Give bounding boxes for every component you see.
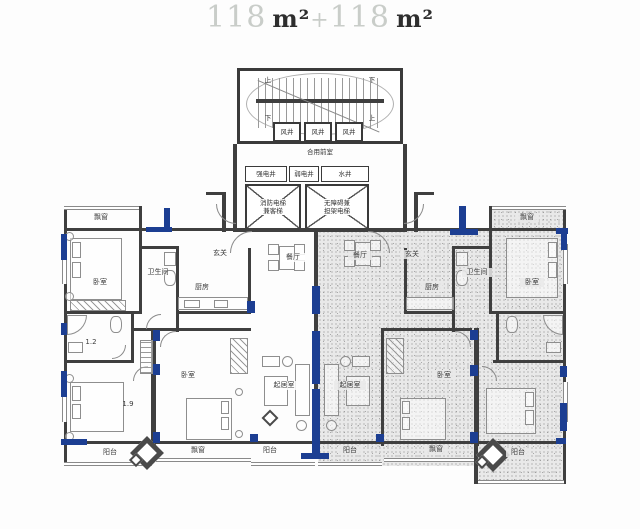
- side-table: [262, 356, 280, 367]
- wall: [493, 360, 563, 363]
- stretcher-elevator-label-2: 担架电梯: [322, 207, 352, 215]
- room-label-entry-right: 玄关: [400, 250, 424, 259]
- structure-column: [470, 365, 478, 376]
- sink: [456, 252, 468, 266]
- fire-elevator-label-2: 兼客梯: [261, 207, 285, 215]
- pillow: [221, 417, 229, 430]
- toilet: [110, 316, 122, 333]
- wall: [381, 328, 384, 446]
- structure-column: [312, 286, 320, 314]
- room-label-balcony-center: 阳台: [258, 446, 282, 455]
- wall: [176, 311, 251, 314]
- entry-door-arc: [230, 231, 252, 253]
- wardrobe: [230, 338, 248, 374]
- shower: [67, 315, 87, 335]
- window: [563, 244, 568, 284]
- room-label-entry-left: 玄关: [208, 249, 232, 258]
- room-label-bedroom-bm-right: 卧室: [432, 371, 456, 380]
- structure-column: [312, 389, 320, 439]
- floorplan: 118 m²+118 m² 上 下 下 上 风井 风井 风井 合用前室 强电井 …: [0, 0, 640, 529]
- structure-column: [450, 229, 478, 235]
- dim-label-bed: 1.9: [120, 400, 136, 409]
- structure-column: [61, 234, 67, 260]
- structure-column: [376, 434, 384, 442]
- shared-lobby-label: 合用前室: [290, 148, 350, 156]
- kitchen-counter: [406, 297, 454, 310]
- structure-column: [470, 330, 478, 340]
- wall: [139, 228, 142, 314]
- room-label-balcony-right-center: 阳台: [338, 446, 362, 455]
- wall: [139, 246, 179, 249]
- wind-shaft-box: 风井: [304, 122, 332, 142]
- dim-label-bath: 1.2: [83, 338, 99, 347]
- door-arc: [216, 204, 236, 224]
- wall: [156, 441, 251, 444]
- room-label-bay-window-bm-right: 飘窗: [424, 445, 448, 454]
- area-right: 118: [330, 0, 390, 35]
- fire-elevator: 消防电梯 兼客梯: [245, 184, 301, 230]
- pillow: [72, 404, 81, 419]
- stair-up-label: 上: [366, 114, 378, 122]
- wind-shaft-label: 风井: [310, 128, 327, 136]
- pillow: [72, 242, 81, 258]
- wall: [176, 246, 179, 332]
- pillow: [525, 392, 534, 407]
- stair-down-label: 下: [366, 76, 378, 84]
- balcony-rail: [251, 462, 315, 466]
- wardrobe: [386, 338, 404, 374]
- armchair: [340, 356, 351, 367]
- chair: [344, 240, 355, 251]
- wall: [64, 360, 134, 363]
- pillow: [548, 242, 557, 258]
- wall: [496, 311, 499, 363]
- wall: [206, 192, 224, 195]
- wall: [416, 192, 434, 195]
- shaft-weak-box: 弱电井: [289, 166, 319, 182]
- structure-column: [61, 439, 87, 445]
- wall: [452, 246, 492, 249]
- wall: [131, 311, 134, 363]
- door-arc: [112, 345, 126, 359]
- shaft-strong-box: 强电井: [245, 166, 287, 182]
- wall: [318, 441, 382, 444]
- structure-column: [459, 206, 466, 230]
- room-label-living-left: 起居室: [268, 381, 300, 390]
- structure-column: [312, 331, 320, 384]
- room-label-kitchen-right: 厨房: [420, 283, 444, 292]
- wall: [64, 444, 67, 464]
- fire-elevator-label-1: 消防电梯: [258, 199, 288, 207]
- room-label-bay-window-tr: 飘窗: [515, 213, 539, 222]
- stair-up-label: 上: [262, 76, 274, 84]
- sink: [546, 342, 561, 353]
- armchair: [282, 356, 293, 367]
- sink: [68, 342, 83, 353]
- structure-column: [561, 234, 567, 250]
- bay-window: [489, 206, 566, 210]
- pillow: [525, 410, 534, 425]
- wall: [407, 228, 566, 231]
- wall: [404, 311, 455, 314]
- kitchen-sink: [184, 300, 200, 308]
- wall: [563, 446, 566, 484]
- wall: [384, 441, 474, 444]
- stair-landing: [256, 99, 384, 103]
- pillow: [221, 401, 229, 414]
- plus-sign: +: [310, 8, 329, 33]
- nightstand: [235, 430, 243, 438]
- room-label-balcony-bl: 阳台: [98, 448, 122, 457]
- room-label-bedroom-tl: 卧室: [88, 278, 112, 287]
- room-label-kitchen-left: 厨房: [190, 283, 214, 292]
- room-label-bay-window-bm: 飘窗: [186, 446, 210, 455]
- stretcher-elevator-label-1: 无障碍兼: [322, 199, 352, 207]
- shaft-strong-label: 强电井: [254, 170, 278, 178]
- chair: [370, 240, 381, 251]
- wall: [156, 328, 251, 331]
- wind-shaft-label: 风井: [279, 128, 296, 136]
- wall: [233, 228, 407, 232]
- nightstand: [235, 388, 243, 396]
- wind-shaft-box: 风井: [273, 122, 301, 142]
- sofa: [295, 364, 310, 416]
- pillow: [72, 262, 81, 278]
- plant: [326, 420, 337, 431]
- area-left: 118: [206, 0, 266, 35]
- structure-column: [301, 453, 329, 459]
- wardrobe: [70, 300, 126, 311]
- room-label-bathroom-tr: 卫生间: [462, 268, 492, 277]
- balcony-rail: [478, 480, 564, 484]
- bay-window: [64, 206, 142, 210]
- door-arc: [160, 331, 176, 347]
- bay-window: [384, 458, 474, 462]
- shaft-water-box: 水井: [321, 166, 369, 182]
- stair-treads: [258, 78, 382, 128]
- structure-column: [560, 366, 567, 377]
- area-right-unit: m²: [396, 4, 434, 33]
- stair-down-label: 下: [262, 114, 274, 122]
- structure-column: [61, 323, 67, 335]
- structure-column: [470, 432, 478, 443]
- structure-column: [153, 364, 160, 375]
- wind-shaft-label: 风井: [341, 128, 358, 136]
- structure-column: [560, 403, 567, 431]
- area-left-unit: m²: [272, 4, 310, 33]
- stretcher-elevator: 无障碍兼 担架电梯: [305, 184, 369, 230]
- room-label-bathroom-tl: 卫生间: [143, 268, 173, 277]
- stove: [214, 300, 228, 308]
- pillow: [402, 401, 410, 414]
- chair: [268, 260, 279, 271]
- room-label-living-right: 起居室: [334, 381, 366, 390]
- structure-column: [61, 371, 67, 397]
- structure-column: [153, 330, 160, 341]
- wall: [493, 311, 563, 314]
- page-title: 118 m²+118 m²: [0, 0, 640, 35]
- structure-column: [153, 432, 160, 443]
- wall: [489, 206, 492, 230]
- plant: [296, 420, 307, 431]
- shaft-water-label: 水井: [337, 170, 354, 178]
- pillow: [72, 386, 81, 401]
- room-label-bedroom-bm: 卧室: [176, 371, 200, 380]
- closet: [140, 340, 153, 374]
- pillow: [402, 417, 410, 430]
- room-label-dining-left: 餐厅: [281, 253, 305, 262]
- wall: [251, 441, 315, 444]
- toilet: [506, 316, 518, 333]
- door-arc: [146, 314, 161, 329]
- wall: [452, 246, 455, 332]
- side-table: [352, 356, 370, 367]
- wall: [139, 206, 142, 230]
- room-label-bay-window-tl: 飘窗: [86, 213, 116, 222]
- balcony-rail: [318, 462, 382, 466]
- room-label-bedroom-tr: 卧室: [520, 278, 544, 287]
- door-arc: [404, 204, 424, 224]
- sink: [164, 252, 176, 266]
- wind-shaft-box: 风井: [335, 122, 363, 142]
- shaft-weak-label: 弱电井: [292, 170, 316, 178]
- room-label-dining-right: 餐厅: [348, 251, 372, 260]
- structure-column: [247, 301, 255, 313]
- plant: [262, 410, 279, 427]
- wall: [474, 328, 479, 446]
- structure-column: [250, 434, 258, 442]
- bay-window: [156, 458, 251, 462]
- structure-column: [146, 227, 172, 232]
- sofa: [324, 364, 339, 416]
- structure-column: [556, 438, 566, 444]
- pillow: [548, 262, 557, 278]
- chair: [268, 244, 279, 255]
- room-label-balcony-br: 阳台: [506, 448, 530, 457]
